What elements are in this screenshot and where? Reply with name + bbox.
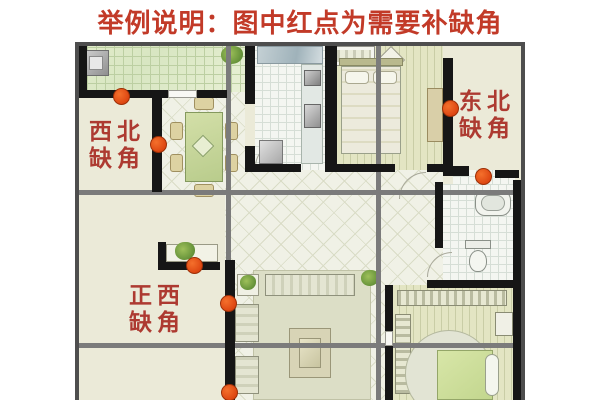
dining-chair <box>170 154 183 172</box>
missing-corner-dot-west-shelf-wall <box>186 257 203 274</box>
kitchen-counter <box>257 46 323 64</box>
window <box>168 90 197 98</box>
pillow <box>345 71 369 84</box>
wall <box>435 182 443 248</box>
wall <box>337 164 395 172</box>
balcony-sink-basin <box>89 56 103 70</box>
wall <box>197 90 227 98</box>
wall <box>225 260 235 400</box>
bedroom-shelf <box>397 290 507 306</box>
label-line: 西北 <box>83 118 151 145</box>
nightstand <box>495 312 513 336</box>
armchair <box>235 304 259 342</box>
grid-border-top <box>75 42 525 46</box>
kitchen-fridge <box>259 140 283 164</box>
label-line: 东北 <box>455 88 519 115</box>
wall <box>385 346 393 400</box>
wall <box>79 46 87 96</box>
wall <box>495 170 519 178</box>
grid-line-horizontal <box>75 343 525 348</box>
missing-corner-dot-northwest-top-wall <box>113 88 130 105</box>
label-line: 缺角 <box>123 309 191 336</box>
label-line: 缺角 <box>83 145 151 172</box>
label-line: 缺角 <box>455 115 519 142</box>
grid-border-right <box>521 42 525 400</box>
kitchen-sink <box>304 70 321 86</box>
grid-line-horizontal <box>75 190 525 195</box>
missing-corner-dot-northeast-entry-wall <box>475 168 492 185</box>
label-line: 正西 <box>123 282 191 309</box>
toilet-tank <box>465 240 491 249</box>
bed-pillow-row <box>485 354 499 396</box>
kitchen-stove <box>304 104 321 128</box>
dining-chair <box>194 97 214 110</box>
page: 举例说明：图中红点为需要补缺角 <box>0 0 600 400</box>
missing-corner-dot-west-hall-wall-lower <box>221 384 238 400</box>
bathtub-basin <box>481 195 505 211</box>
master-bed-headboard <box>339 58 403 66</box>
label-northeast-missing-corner: 东北 缺角 <box>455 88 519 142</box>
wall <box>385 285 393 331</box>
wall <box>427 280 515 288</box>
wall <box>245 46 255 104</box>
wall <box>443 166 469 176</box>
missing-corner-dot-northwest-side-wall <box>150 136 167 153</box>
wall <box>325 46 337 172</box>
wall <box>513 180 521 400</box>
dresser <box>427 88 443 142</box>
sofa <box>265 274 355 296</box>
wall <box>245 146 255 172</box>
label-northwest-missing-corner: 西北 缺角 <box>83 118 151 172</box>
label-west-missing-corner: 正西 缺角 <box>123 282 191 336</box>
window <box>385 331 393 346</box>
dining-chair <box>170 122 183 140</box>
wall <box>255 164 301 172</box>
armchair <box>235 356 259 394</box>
floor-plan: 西北 缺角 东北 缺角 正西 缺角 <box>75 42 525 400</box>
toilet-bowl <box>469 250 487 272</box>
page-title: 举例说明：图中红点为需要补缺角 <box>0 3 600 40</box>
missing-corner-dot-west-hall-wall-upper <box>220 295 237 312</box>
